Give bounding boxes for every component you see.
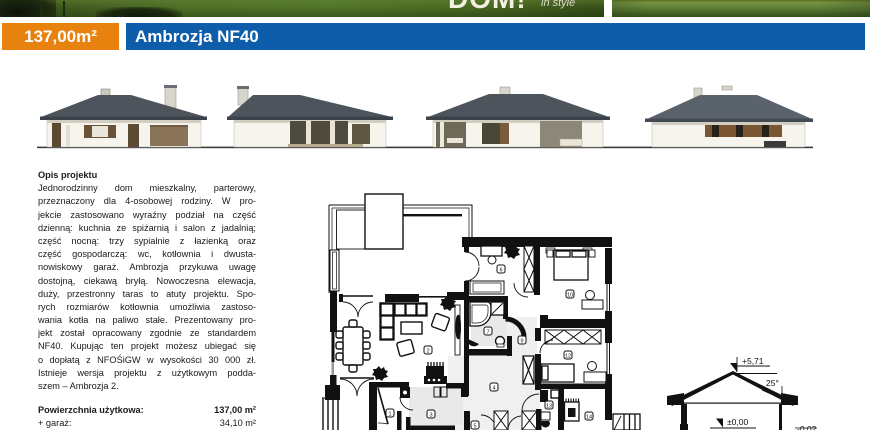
svg-text:2: 2 — [426, 349, 429, 355]
svg-text:10: 10 — [567, 293, 573, 299]
svg-text:7: 7 — [486, 330, 489, 336]
svg-text:14: 14 — [586, 415, 592, 421]
svg-text:-0,02: -0,02 — [797, 424, 817, 430]
svg-text:13: 13 — [546, 404, 552, 410]
svg-text:6: 6 — [499, 268, 502, 274]
svg-text:9: 9 — [520, 339, 523, 345]
svg-text:±0,00: ±0,00 — [727, 417, 748, 427]
svg-text:12: 12 — [565, 354, 571, 360]
svg-text:25°: 25° — [766, 378, 779, 388]
svg-text:4: 4 — [492, 386, 495, 392]
svg-text:5: 5 — [473, 424, 476, 430]
svg-text:3: 3 — [429, 413, 432, 419]
svg-text:1: 1 — [388, 412, 391, 418]
svg-text:+5,71: +5,71 — [742, 356, 764, 366]
